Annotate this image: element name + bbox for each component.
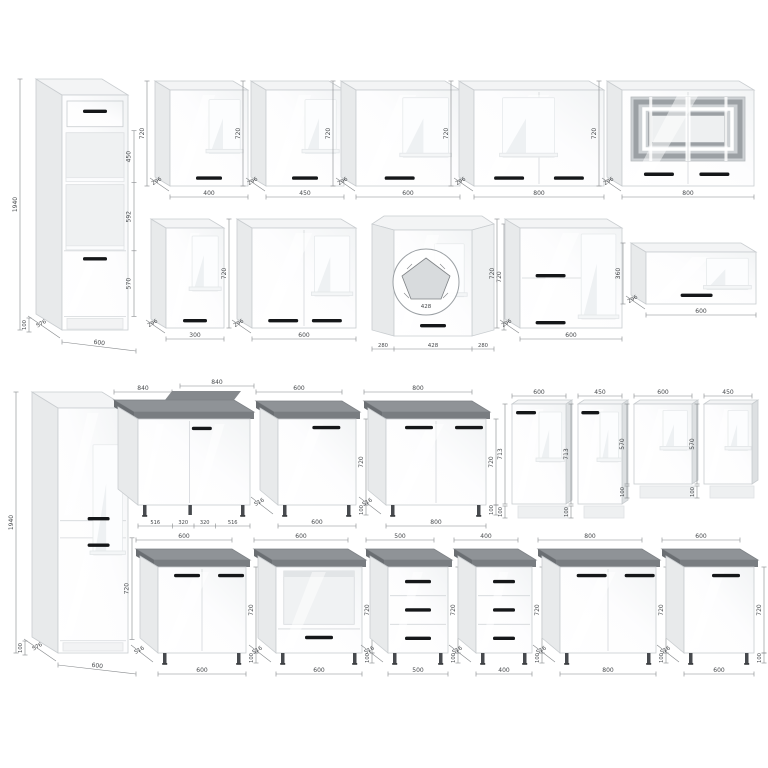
side-panel — [237, 219, 252, 328]
wall-cabinet-glass-800: 720296800 — [591, 81, 754, 200]
top-panel — [607, 81, 754, 90]
base-cabinet-600-double: 600516600720100 — [131, 533, 259, 676]
dim-label: 720 — [450, 604, 457, 616]
drawer-base-cabinet-400: 400516400720100 — [449, 533, 545, 676]
dim-label: 100 — [489, 505, 495, 515]
door-handle — [625, 574, 655, 577]
side-panel — [607, 81, 622, 186]
dim-label: 1940 — [12, 197, 19, 212]
dim-label: 400 — [498, 667, 510, 674]
dim-label: 516 — [133, 645, 146, 656]
dim-label: 428 — [421, 304, 432, 310]
dim-label: 720 — [489, 268, 496, 280]
side-panel — [368, 408, 386, 505]
door-handle — [192, 427, 212, 430]
side-panel — [260, 408, 278, 505]
leg — [481, 653, 485, 663]
leg — [523, 653, 527, 663]
dim-label: 600 — [295, 533, 307, 540]
dim-label: 800 — [584, 533, 596, 540]
appliance-panel-450x713: 450713100 — [563, 389, 628, 518]
leg — [647, 653, 651, 663]
panel-plinth — [640, 486, 694, 498]
leg-foot — [392, 663, 397, 665]
leg-foot — [564, 663, 569, 665]
leg-foot — [390, 515, 395, 517]
countertop-edge — [272, 560, 366, 567]
dim-label: 720 — [221, 268, 228, 280]
side-panel — [151, 219, 166, 328]
top-panel — [155, 81, 248, 90]
countertop — [114, 400, 254, 412]
door-handle — [183, 319, 207, 322]
leg — [745, 653, 749, 663]
panel-plinth — [584, 506, 624, 518]
top-panel — [631, 243, 756, 252]
base-oven-cabinet-600: 600516600720100 — [249, 533, 375, 676]
shelf-edge — [66, 246, 124, 250]
door-handle — [405, 637, 431, 640]
leg — [689, 653, 693, 663]
dim-label: 840 — [137, 385, 149, 392]
countertop-edge — [274, 412, 360, 419]
window-sill — [597, 458, 621, 462]
dim-label: 100 — [564, 507, 570, 517]
appliance-panel-450x570: 450570100 — [689, 389, 758, 498]
dim-label: 600 — [298, 332, 310, 339]
wall-flap-cabinet-600-double: 720296600 — [489, 219, 622, 342]
dim-label: 516 — [251, 645, 264, 656]
window-sill — [578, 315, 619, 319]
leg-foot — [142, 515, 147, 517]
dim-label: 800 — [682, 190, 694, 197]
panel-plinth — [710, 486, 754, 498]
side-panel — [505, 219, 520, 328]
dim-label: 100 — [690, 487, 696, 497]
left-flank — [372, 224, 394, 336]
wall-flap-cabinet-600x360: 360296600 — [615, 243, 756, 318]
leg-foot — [744, 663, 749, 665]
dim-label: 720 — [235, 128, 242, 140]
side-panel — [459, 81, 474, 186]
countertop — [254, 549, 366, 560]
dim-label: 720 — [124, 583, 131, 595]
window-sill — [400, 153, 452, 157]
cabinet-drawings: 4505925701940100576600720296400720296450… — [8, 79, 767, 677]
door-handle — [681, 294, 713, 297]
wall-cabinet-400: 720296400 — [139, 81, 248, 200]
dim-label: 600 — [713, 667, 725, 674]
door-handle — [218, 574, 244, 577]
top-panel — [251, 81, 344, 90]
countertop — [136, 549, 250, 560]
dim-label: 600 — [293, 385, 305, 392]
plinth — [67, 318, 123, 329]
wall-corner-cabinet-428: 428720280428280 — [372, 216, 507, 352]
door-handle — [405, 580, 431, 583]
window-sill — [311, 292, 352, 296]
door-handle — [536, 321, 566, 324]
dim-label: 600 — [657, 389, 669, 396]
dim-label: 720 — [534, 604, 541, 616]
panel-top-edge — [512, 400, 572, 404]
window-sill — [704, 285, 752, 289]
door-handle — [174, 574, 200, 577]
top-panel — [372, 216, 494, 230]
leg-foot — [346, 515, 351, 517]
door-handle — [493, 608, 515, 611]
leg-foot — [240, 515, 245, 517]
dim-label: 100 — [620, 487, 626, 497]
wall-cabinet-600-double: 720296600 — [221, 219, 356, 342]
leg-foot — [476, 515, 481, 517]
appliance-panel-600x570: 600570100 — [619, 389, 698, 498]
leg-foot — [480, 663, 485, 665]
leg-foot — [438, 663, 443, 665]
leg — [347, 505, 351, 515]
countertop-edge — [382, 412, 490, 419]
leg — [283, 505, 287, 515]
dim-label: 516 — [361, 497, 374, 508]
door-handle — [83, 110, 107, 113]
door-handle — [493, 580, 515, 583]
dim-label: 500 — [412, 667, 424, 674]
base-cabinet-600-single: 600516600720100 — [657, 533, 767, 676]
dim-label: 713 — [563, 448, 570, 460]
base-cabinet-800-double: 800516800720100 — [359, 385, 499, 528]
dim-label: 720 — [658, 604, 665, 616]
dim-label: 320 — [178, 520, 188, 526]
wall-cabinet-450: 720296450 — [235, 81, 344, 200]
dim-label: 800 — [533, 190, 545, 197]
window-sill — [660, 446, 690, 450]
leg-foot — [280, 663, 285, 665]
dim-label: 516 — [150, 520, 160, 526]
dim-label: 300 — [189, 332, 201, 339]
door-handle — [292, 176, 318, 179]
door-handle — [405, 608, 431, 611]
door-handle — [577, 574, 607, 577]
door-handle — [88, 517, 110, 520]
dim-label: 280 — [378, 343, 388, 349]
wall-cabinet-300: 296300 — [146, 219, 224, 342]
dim-label: 600 — [402, 190, 414, 197]
door-handle — [455, 426, 483, 429]
dim-label: 450 — [126, 151, 133, 163]
dim-label: 516 — [253, 497, 266, 508]
dim-label: 100 — [18, 643, 24, 653]
window-reflection — [600, 412, 618, 462]
dim-label: 720 — [443, 128, 450, 140]
leg-foot — [352, 663, 357, 665]
leg — [188, 505, 192, 515]
dim-label: 400 — [480, 533, 492, 540]
door-handle — [88, 543, 110, 546]
side-panel — [36, 79, 62, 330]
side-panel — [341, 81, 356, 186]
door-handle — [536, 274, 566, 277]
side-panel — [155, 81, 170, 186]
window-reflection — [728, 410, 748, 450]
dim-label: 720 — [591, 128, 598, 140]
door-handle — [405, 426, 433, 429]
dim-label: 713 — [497, 448, 504, 460]
side-panel — [258, 556, 276, 653]
side-panel — [32, 392, 58, 653]
countertop-edge — [680, 560, 758, 567]
appliance-drawer-front — [67, 101, 123, 127]
door-handle — [712, 574, 740, 577]
leg — [281, 653, 285, 663]
base-corner-cabinet-840: 840840516320320516 — [114, 379, 254, 528]
dim-label: 840 — [211, 379, 223, 386]
door-handle — [554, 176, 584, 179]
countertop-edge — [134, 412, 254, 419]
leg-foot — [282, 515, 287, 517]
door-handle — [385, 176, 415, 179]
countertop-edge — [556, 560, 660, 567]
leg — [163, 653, 167, 663]
dim-label: 720 — [358, 456, 365, 468]
door-handle — [305, 636, 333, 639]
dim-label: 800 — [412, 385, 424, 392]
dim-label: 600 — [565, 332, 577, 339]
leg-foot — [646, 663, 651, 665]
countertop — [364, 401, 490, 412]
dim-label: 100 — [22, 320, 28, 330]
dim-label: 500 — [394, 533, 406, 540]
top-panel — [505, 219, 622, 228]
dim-label: 320 — [200, 520, 210, 526]
leg-foot — [236, 663, 241, 665]
leg — [393, 653, 397, 663]
door-handle — [196, 176, 222, 179]
door-handle — [83, 257, 107, 260]
leg — [237, 653, 241, 663]
side-panel — [542, 556, 560, 653]
door-handle — [516, 411, 536, 414]
window-reflection — [539, 412, 562, 462]
countertop-edge — [384, 560, 452, 567]
leg-foot — [688, 663, 693, 665]
dim-label: 450 — [594, 389, 606, 396]
window-sill — [536, 458, 565, 462]
side-panel — [458, 556, 476, 653]
base-cabinet-800-double-2: 800516800720100 — [533, 533, 669, 676]
dim-label: 360 — [615, 268, 622, 280]
window-sill — [725, 446, 751, 450]
door-handle — [493, 637, 515, 640]
top-panel — [341, 81, 460, 90]
dim-label: 720 — [139, 128, 146, 140]
dim-label: 570 — [126, 278, 133, 290]
wall-cabinet-800-double: 720296800 — [443, 81, 604, 200]
base-cabinet-600: 600516600720100 — [251, 385, 369, 528]
door-handle — [268, 319, 298, 322]
panel-top-edge — [704, 400, 758, 404]
countertop-edge — [472, 560, 536, 567]
side-panel — [370, 556, 388, 653]
panel-back-edge — [752, 400, 758, 484]
appliance-panel-600x713: 600713100 — [497, 389, 572, 518]
tall-oven-housing-600: 4505925701940100576600 — [12, 79, 137, 354]
plinth — [63, 643, 123, 651]
dim-label: 450 — [722, 389, 734, 396]
top-panel — [459, 81, 604, 90]
side-panel — [118, 407, 138, 505]
dim-label: 800 — [602, 667, 614, 674]
shelf-edge — [66, 178, 124, 182]
panel-top-edge — [634, 400, 698, 404]
tall-pantry-600: 7201940100576600 — [8, 392, 136, 677]
dim-label: 600 — [533, 389, 545, 396]
door-handle — [494, 176, 524, 179]
side-panel — [140, 556, 158, 653]
dim-label: 400 — [203, 190, 215, 197]
wall-cabinet-600: 720296600 — [325, 81, 460, 200]
window-sill — [302, 149, 339, 153]
dim-label: 720 — [325, 128, 332, 140]
leg — [241, 505, 245, 515]
dim-label: 100 — [757, 653, 763, 663]
dim-label: 100 — [498, 507, 504, 517]
window-sill — [206, 149, 243, 153]
dim-label: 800 — [430, 519, 442, 526]
window-sill — [90, 551, 125, 555]
leg — [477, 505, 481, 515]
dim-label: 720 — [756, 604, 763, 616]
dim-label: 600 — [695, 308, 707, 315]
dim-label: 600 — [311, 519, 323, 526]
dim-label: 600 — [196, 667, 208, 674]
leg-foot — [522, 663, 527, 665]
dim-label: 600 — [313, 667, 325, 674]
dim-label: 280 — [478, 343, 488, 349]
dim-label: 720 — [248, 604, 255, 616]
kitchen-cabinet-diagram: 4505925701940100576600720296400720296450… — [0, 0, 768, 768]
dim-label: 1940 — [8, 515, 15, 530]
door-handle — [581, 411, 599, 414]
dim-label: 592 — [126, 211, 133, 223]
door-handle — [312, 319, 342, 322]
leg — [565, 653, 569, 663]
leg — [391, 505, 395, 515]
side-panel — [666, 556, 684, 653]
leg-foot — [162, 663, 167, 665]
door-handle — [644, 173, 674, 176]
side-panel — [251, 81, 266, 186]
countertop — [538, 549, 660, 560]
door-handle — [420, 324, 446, 327]
door-handle — [312, 426, 340, 429]
diagram-canvas: 4505925701940100576600720296400720296450… — [0, 0, 768, 768]
leg — [353, 653, 357, 663]
top-panel — [237, 219, 356, 228]
leg — [439, 653, 443, 663]
leg — [143, 505, 147, 515]
drawer-base-cabinet-500: 500516500720100 — [361, 533, 461, 676]
open-niche — [66, 133, 124, 179]
dim-label: 570 — [619, 438, 626, 450]
countertop-edge — [154, 560, 250, 567]
window-sill — [189, 287, 221, 291]
countertop — [256, 401, 360, 412]
dim-label: 600 — [178, 533, 190, 540]
panel-top-edge — [578, 400, 628, 404]
panel-plinth — [518, 506, 568, 518]
dim-label: 570 — [689, 438, 696, 450]
mullion-right — [724, 97, 727, 161]
dim-label: 600 — [695, 533, 707, 540]
dim-label: 516 — [228, 520, 238, 526]
dim-label: 428 — [428, 343, 439, 349]
dim-label: 720 — [488, 456, 495, 468]
dim-label: 450 — [299, 190, 311, 197]
open-niche — [66, 185, 124, 247]
door-handle — [699, 173, 729, 176]
window-sill — [500, 153, 558, 157]
counter-back-wing — [165, 391, 241, 400]
